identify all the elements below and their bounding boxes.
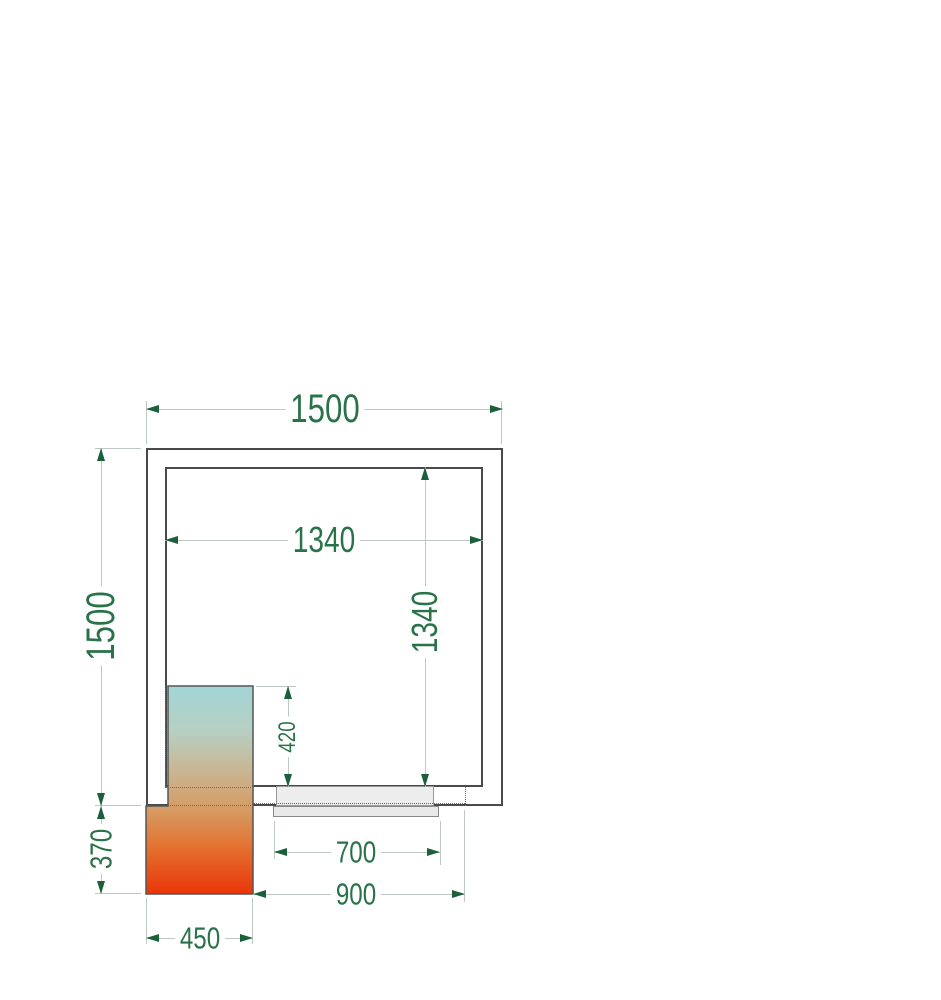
arrow-down-icon [284, 774, 292, 787]
arrow-right-icon [427, 848, 440, 856]
ext-line [464, 810, 465, 902]
dim-inner-width-label: 1340 [288, 522, 360, 558]
arrow-right-icon [240, 934, 253, 942]
hidden-inner-wall-line [165, 787, 253, 788]
refrigeration-unit [145, 685, 254, 895]
arrow-left-icon [146, 405, 159, 413]
hidden-left-wall-line [165, 686, 166, 787]
dim-unit-inside-label: 420 [276, 717, 300, 758]
hidden-outer-wall-line [168, 805, 253, 806]
door-frame-hidden-edge [465, 787, 466, 806]
arrow-down-icon [97, 881, 105, 894]
door-hidden-edge [253, 803, 465, 804]
dim-outer-width-label: 1500 [286, 389, 365, 429]
arrow-up-icon [284, 686, 292, 699]
arrow-up-icon [421, 467, 429, 480]
arrow-right-icon [470, 536, 483, 544]
dim-door-width-label: 700 [331, 837, 381, 868]
arrow-right-icon [452, 890, 465, 898]
dim-inner-depth-label: 1340 [407, 586, 443, 658]
arrow-left-icon [165, 536, 178, 544]
unit-outline-shape [146, 686, 253, 894]
arrow-right-icon [490, 405, 503, 413]
drawing-canvas: 1500 1500 1340 1340 420 700 900 450 370 [0, 0, 941, 1000]
arrow-left-icon [146, 934, 159, 942]
ext-line [440, 821, 441, 865]
dim-unit-width-label: 450 [175, 923, 225, 954]
dim-door-span-label: 900 [331, 879, 381, 910]
arrow-down-icon [421, 774, 429, 787]
door-sill [273, 806, 439, 817]
dim-outer-depth-label: 1500 [81, 587, 121, 666]
arrow-down-icon [97, 793, 105, 806]
dim-unit-outside-label: 370 [86, 824, 117, 874]
arrow-up-icon [97, 448, 105, 461]
arrow-left-icon [274, 848, 287, 856]
arrow-left-icon [253, 890, 266, 898]
arrow-up-icon [97, 806, 105, 819]
